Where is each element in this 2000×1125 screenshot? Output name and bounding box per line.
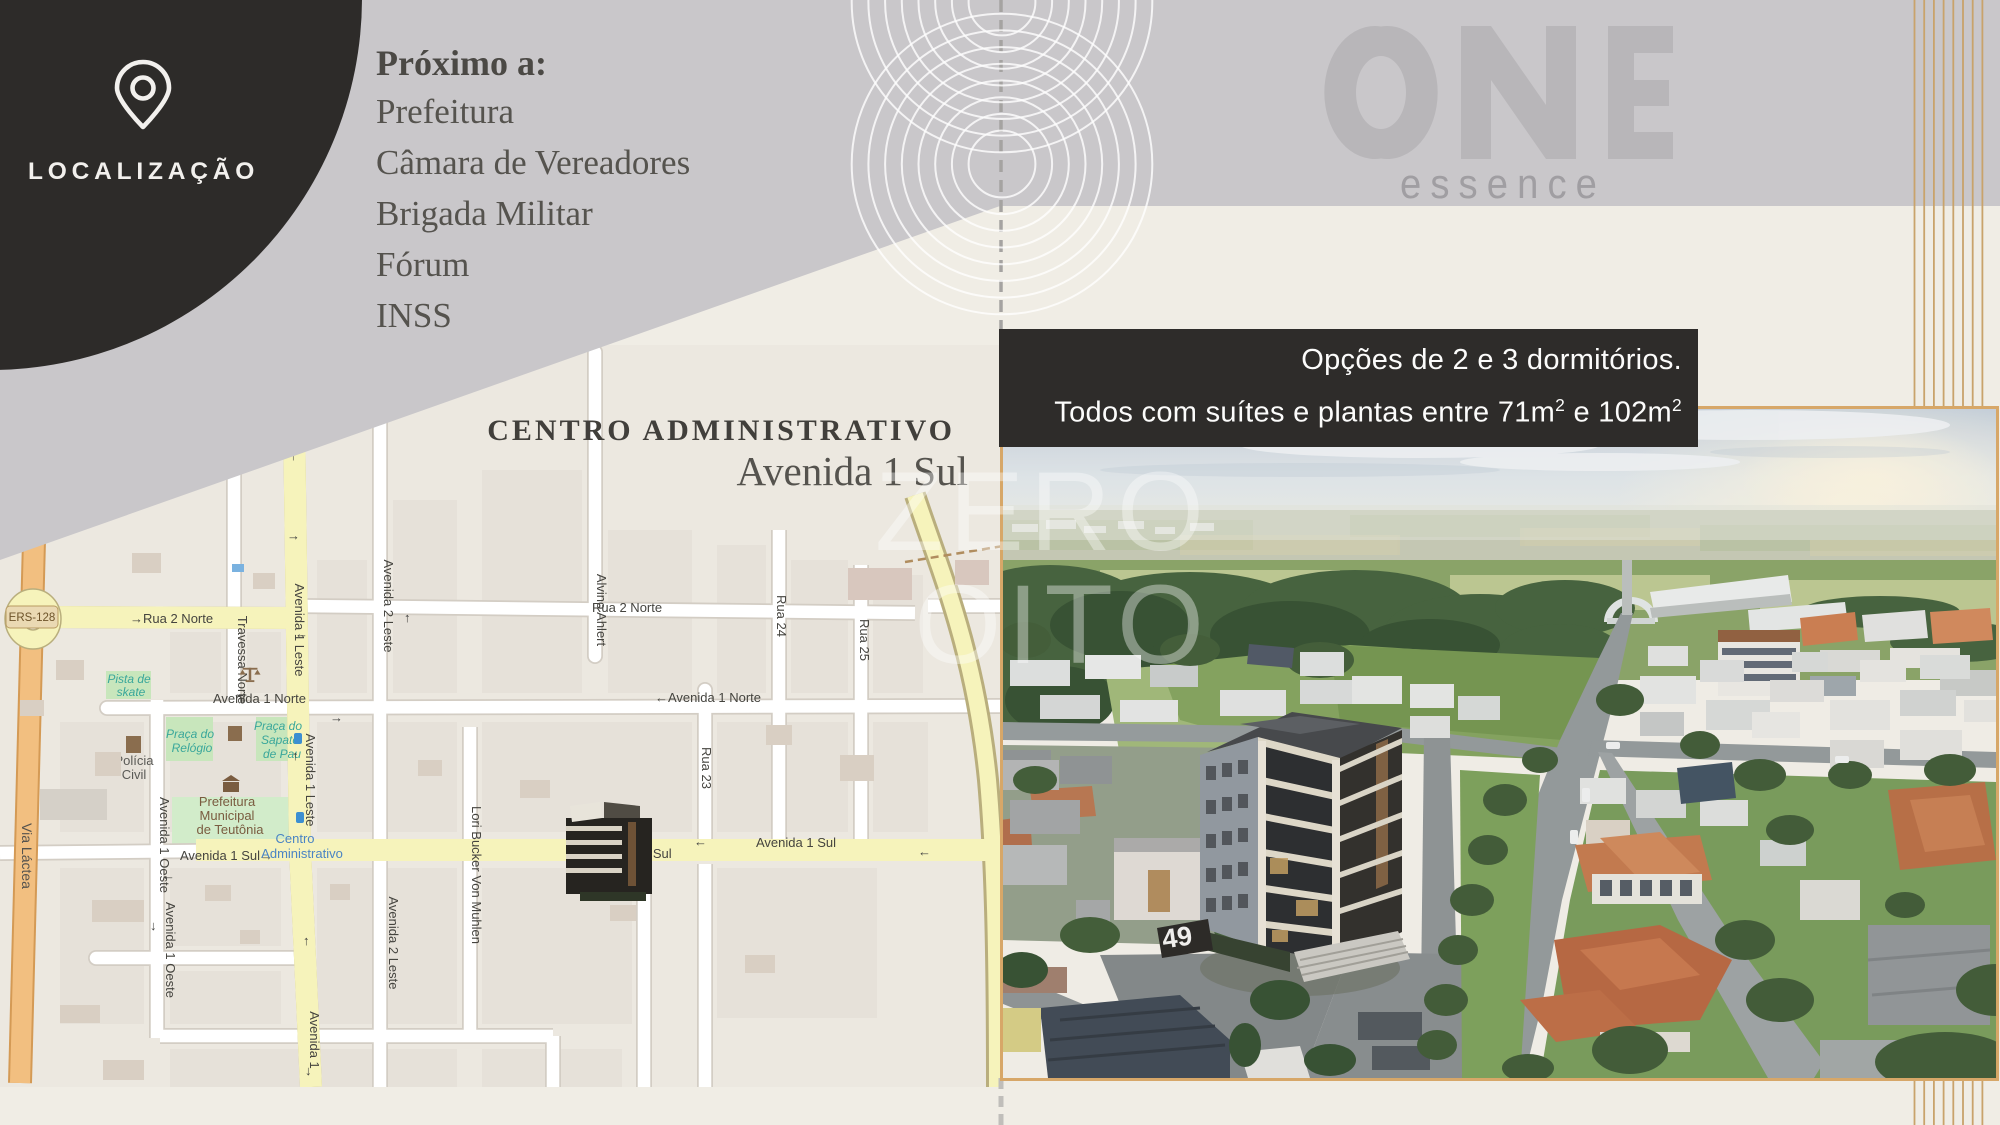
svg-text:essence: essence xyxy=(1400,160,1606,207)
